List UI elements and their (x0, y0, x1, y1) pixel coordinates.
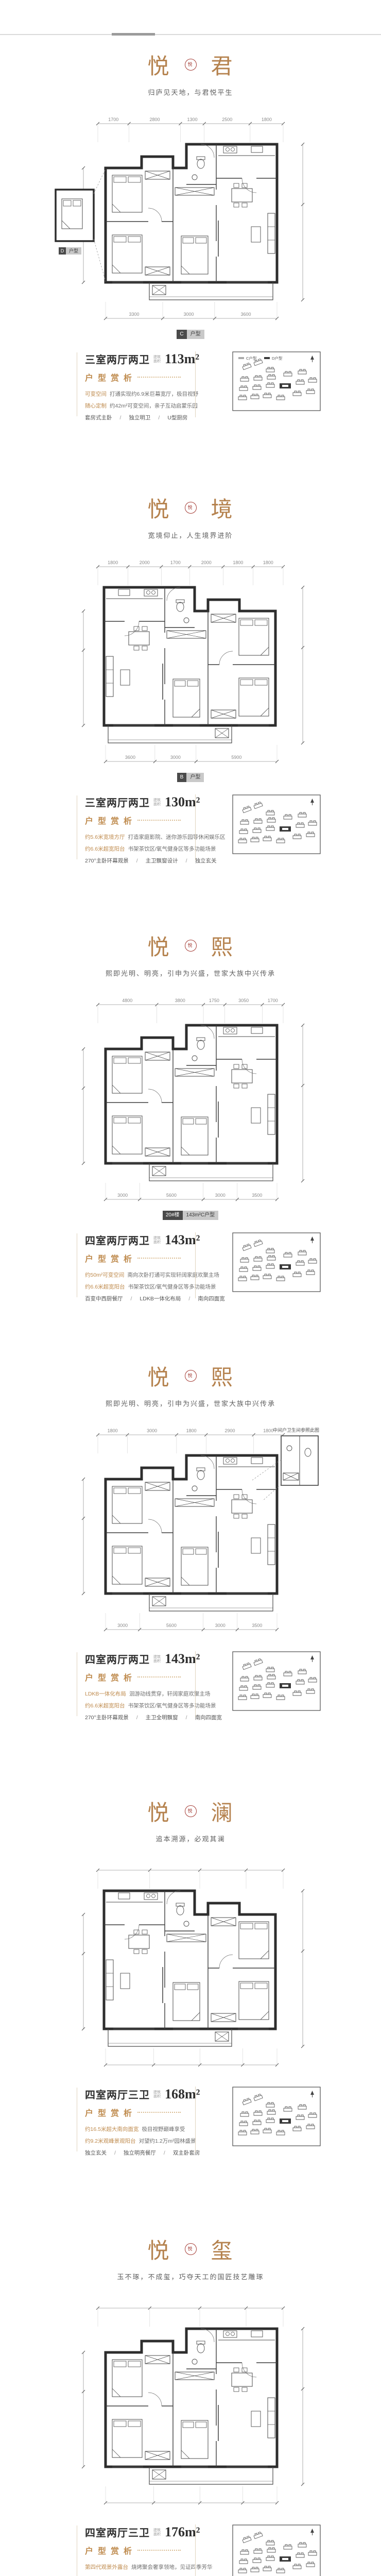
plan-badge-dark: C (177, 330, 186, 339)
plan-dimension: 3000 (117, 1623, 128, 1628)
feature-label: 约6.6米超宽阳台 (85, 846, 125, 852)
plan-badge-dark: B (177, 773, 187, 782)
seal-char: 悦 (187, 943, 193, 948)
tag-item: 270°主卧环幕观景 (85, 1712, 129, 1724)
tag-item: 独立明亮餐厅 (124, 2147, 156, 2159)
feature-text: 书架茶饮区/氧气健身区等多功能场景 (128, 1703, 216, 1709)
plan-dimension: 2000 (140, 560, 150, 565)
seal-icon: 悦 (185, 2243, 197, 2255)
feature-text: 洄游动线贯穿，轩阔家庭欢聚主场 (129, 1691, 211, 1697)
tag-row: 独立玄关/独立明亮餐厅/双主卧套房 (85, 2147, 327, 2159)
top-divider (0, 34, 381, 35)
feature-text: 打造家庭影院、迷你游乐园等休闲娱乐区 (128, 834, 226, 840)
site-map-svg: C户型 D户型 (232, 351, 321, 411)
section-title: 悦 悦 澜 (0, 1795, 381, 1827)
plan-badge-light: 户型 (187, 330, 204, 339)
legend-label: C户型 (246, 355, 257, 361)
feature-label: 可变空间 (85, 391, 107, 397)
plan-dimension: 1700 (170, 560, 181, 565)
tag-row: 270°主卧环幕观景/主卫飘窗设计/独立玄关 (85, 855, 327, 867)
seal-icon: 悦 (185, 502, 197, 514)
tag-item: 独立玄关 (195, 855, 217, 867)
section-subtitle: 追本溯源，必观其澜 (0, 1834, 381, 1843)
floor-plan (46, 1859, 335, 2074)
legend-label: D户型 (272, 355, 283, 361)
info-divider (195, 2524, 196, 2576)
plan-dimension: 3000 (117, 1193, 128, 1198)
unit-spec: 三室两厅两卫 (85, 351, 150, 366)
info-divider (195, 1651, 196, 1717)
plan-dimension: 2800 (149, 117, 160, 122)
plan-dimension: 3000 (215, 1623, 226, 1628)
plan-dimension: 1800 (263, 1428, 273, 1433)
section-header: 悦 悦 熙 熙即光明、明亮，引申为兴盛，世家大族中兴传承 (0, 1360, 381, 1408)
floor-plan-wrap: 480038001750305017003000560030003500 (46, 993, 335, 1220)
section-subtitle: 归庐见天地，与君悦平生 (0, 87, 381, 97)
feature-text: 书架茶饮区/氧气健身区等多功能场景 (128, 1284, 216, 1290)
feature-text: 书架茶饮区/氧气健身区等多功能场景 (128, 846, 216, 852)
site-map-svg (232, 2087, 321, 2146)
feature-text: 极目视野巅峰享受 (142, 2126, 185, 2132)
inset-badge-light: 户型 (69, 248, 78, 253)
floor-plan-wrap (46, 1859, 335, 2074)
tag-separator: / (136, 855, 138, 867)
plan-dimension: 1300 (187, 117, 198, 122)
floor-plan: 180030001800290018003000560030003500 (46, 1423, 335, 1639)
product-section: 悦 悦 玺 玉不琢，不成玺，巧夺天工的国匠技艺雕琢 (0, 2233, 381, 2576)
plan-dimension: 3000 (147, 1428, 157, 1433)
plan-dimension: 1700 (268, 998, 278, 1003)
area-label: 建筑面积 (153, 1655, 161, 1663)
area-label: 建筑面积 (153, 2528, 161, 2536)
area-label: 建筑面积 (153, 355, 161, 363)
unit-info: 四室两厅两卫 建筑面积 143m² 户型赏析 LDKB一体化布局洄游动线贯穿，轩… (85, 1651, 327, 1717)
site-map: C户型 D户型 (232, 351, 321, 411)
floor-plan-wrap: 180030001800290018003000560030003500 (46, 1423, 335, 1639)
section-title: 悦 悦 熙 (0, 930, 381, 961)
plan-badge: B 户型 (177, 773, 204, 782)
feature-label: 约6.6米超宽阳台 (85, 1703, 125, 1709)
section-header: 悦 悦 熙 熙即光明、明亮，引申为兴盛，世家大族中兴传承 (0, 930, 381, 978)
section-subtitle: 玉不琢，不成玺，巧夺天工的国匠技艺雕琢 (0, 2272, 381, 2281)
site-map-svg (232, 1651, 321, 1711)
tag-separator: / (114, 2147, 116, 2159)
info-divider (195, 351, 196, 417)
analysis-title: 户型赏析 (85, 2544, 136, 2556)
plan-badge: C 户型 (177, 330, 204, 339)
section-subtitle: 宽境仰止，人生境界进阶 (0, 530, 381, 540)
section-header: 悦 悦 玺 玉不琢，不成玺，巧夺天工的国匠技艺雕琢 (0, 2233, 381, 2281)
plan-dimension: 3600 (125, 755, 135, 760)
plan-dimension: 1750 (209, 998, 219, 1003)
plan-badge-light: 143m²C户型 (183, 1211, 219, 1220)
plan-dimension: 3050 (238, 998, 249, 1003)
unit-spec: 四室两厅三卫 (85, 2087, 150, 2102)
section-title: 悦 悦 境 (0, 492, 381, 523)
analysis-title: 户型赏析 (85, 371, 136, 383)
site-map (232, 1651, 321, 1711)
area-label: 建筑面积 (153, 1236, 161, 1244)
dotted-rule (137, 377, 181, 378)
analysis-title: 户型赏析 (85, 814, 136, 826)
section-header: 悦 悦 境 宽境仰止，人生境界进阶 (0, 492, 381, 540)
site-map (232, 1232, 321, 1292)
floor-plan (46, 2297, 335, 2512)
feature-text: 对望约1.2万m²园林盛景 (139, 2138, 196, 2144)
tag-item: 南向四面宽 (195, 1712, 222, 1724)
plan-dimension: 2900 (224, 1428, 235, 1433)
analysis-title: 户型赏析 (85, 1671, 136, 1683)
tag-item: 套房式主卧 (85, 412, 112, 424)
tag-item: 南向四面宽 (198, 1293, 225, 1305)
unit-inset: D 户型 (56, 169, 106, 281)
tag-separator: / (186, 1712, 187, 1724)
section-title-first: 悦 (147, 2233, 170, 2265)
seal-char: 悦 (187, 2246, 193, 2251)
feature-label: 约6.6米超宽阳台 (85, 1284, 125, 1290)
product-section: 悦 悦 熙 熙即光明、明亮，引申为兴盛，世家大族中兴传承 48003800175… (0, 930, 381, 1298)
tag-item: 主卫全明飘窗 (146, 1712, 178, 1724)
area-value: 113m² (165, 351, 199, 367)
plan-badge: 20#楼 143m²C户型 (163, 1211, 218, 1220)
section-title-first: 悦 (147, 1360, 170, 1392)
tag-item: 主卫飘窗设计 (146, 855, 178, 867)
section-title-first: 悦 (147, 492, 170, 523)
inset-badge-dark: D (61, 248, 64, 253)
seal-icon: 悦 (185, 940, 197, 952)
tag-separator: / (188, 1293, 190, 1305)
seal-char: 悦 (187, 62, 193, 67)
unit-info: 四室两厅两卫 建筑面积 143m² 户型赏析 约50m²可变空间南向次卧打通可实… (85, 1232, 327, 1298)
section-subtitle: 熙即光明、明亮，引申为兴盛，世家大族中兴传承 (0, 968, 381, 978)
tag-item: U型厨房 (167, 412, 187, 424)
unit-spec: 四室两厅两卫 (85, 1651, 150, 1666)
section-title-second: 澜 (211, 1795, 234, 1827)
unit-spec: 三室两厅两卫 (85, 794, 150, 809)
top-divider-dark-segment (112, 33, 155, 36)
floor-plan: 17002800130025001800330030003600 (46, 112, 335, 328)
tag-separator: / (120, 412, 122, 424)
unit-info: 三室两厅两卫 建筑面积 130m² 户型赏析 约5.6米宽境方厅打造家庭影院、迷… (85, 794, 327, 860)
tag-item: 270°主卧环幕观景 (85, 855, 129, 867)
feature-text: 约42m²可变空间，亲子互动启蒙乐园 (110, 403, 198, 409)
plan-dimension: 1700 (108, 117, 118, 122)
plan-dimension: 1800 (186, 1428, 197, 1433)
feature-label: 随心定制 (85, 403, 107, 409)
plan-dimension: 1800 (262, 117, 272, 122)
tag-row: 270°主卧环幕观景/主卫全明飘窗/南向四面宽 (85, 1712, 327, 1724)
feature-text: 烧烤聚会奢享领地，见证四季芳华 (131, 2564, 213, 2570)
section-subtitle: 熙即光明、明亮，引申为兴盛，世家大族中兴传承 (0, 1398, 381, 1408)
unit-info: 四室两厅三卫 建筑面积 168m² 户型赏析 约16.5米超大南向面宽极目视野巅… (85, 2087, 327, 2153)
plan-dimension: 1800 (263, 560, 273, 565)
info-divider (195, 2087, 196, 2153)
site-map-svg (232, 2524, 321, 2576)
tag-item: 双主卧套房 (173, 2147, 200, 2159)
tag-item: 独立玄关 (85, 2147, 107, 2159)
section-title-second: 熙 (211, 1360, 234, 1392)
section-title-second: 君 (211, 49, 234, 80)
tag-separator: / (164, 2147, 165, 2159)
plan-dimension: 3300 (129, 312, 139, 317)
seal-char: 悦 (187, 1808, 193, 1814)
plan-badge-light: 户型 (186, 773, 204, 782)
feature-label: LDKB一体化布局 (85, 1691, 126, 1697)
product-section: 悦 悦 熙 熙即光明、明亮，引申为兴盛，世家大族中兴传承 18003000180… (0, 1360, 381, 1717)
plan-dimension: 1800 (108, 560, 118, 565)
unit-spec: 四室两厅三卫 (85, 2524, 150, 2539)
seal-icon: 悦 (185, 1805, 197, 1817)
brochure-page: 悦 悦 君 归庐见天地，与君悦平生 1700280013002500180033… (0, 0, 381, 2576)
unit-info: 四室两厅三卫 建筑面积 176m² 户型赏析 第四代观景外露台烧烤聚会奢享领地，… (85, 2524, 327, 2576)
plan-dimension: 1800 (233, 560, 243, 565)
feature-label: 第四代观景外露台 (85, 2564, 128, 2570)
plan-dimension: 2500 (222, 117, 232, 122)
tag-separator: / (136, 1712, 138, 1724)
section-title: 悦 悦 玺 (0, 2233, 381, 2265)
product-section: 悦 悦 君 归庐见天地，与君悦平生 1700280013002500180033… (0, 49, 381, 417)
note-text: 中间户卫生间参照此图 (273, 1427, 319, 1433)
plan-dimension: 3800 (175, 998, 185, 1003)
plan-dimension: 3000 (170, 755, 181, 760)
dotted-rule (137, 1258, 181, 1259)
unit-info: 三室两厅两卫 建筑面积 113m² 户型赏析 可变空间打通实现约6.9米巨幕宽厅… (85, 351, 327, 417)
dotted-rule (137, 1676, 181, 1677)
plan-dimension: 5600 (166, 1193, 177, 1198)
plan-dimension: 3500 (252, 1623, 262, 1628)
tag-row: 套房式主卧/独立明卫/U型厨房 (85, 412, 327, 424)
feature-text: 南向次卧打通可实现轩阔家庭欢聚主场 (127, 1272, 219, 1278)
tag-separator: / (131, 1293, 132, 1305)
seal-icon: 悦 (185, 1370, 197, 1382)
plan-dimension: 3600 (240, 312, 251, 317)
dotted-rule (137, 2112, 181, 2113)
product-section: 悦 悦 境 宽境仰止，人生境界进阶 1800200017002000180018… (0, 492, 381, 860)
tag-item: 百变中西厨餐厅 (85, 1293, 123, 1305)
feature-text: 打通实现约6.9米巨幕宽厅，极目视野 (110, 391, 198, 397)
feature-label: 约16.5米超大南向面宽 (85, 2126, 138, 2132)
plan-dimension: 2000 (201, 560, 212, 565)
plan-dimension: 5900 (231, 755, 241, 760)
section-title-first: 悦 (147, 49, 170, 80)
section-title: 悦 悦 君 (0, 49, 381, 80)
section-title-first: 悦 (147, 1795, 170, 1827)
seal-char: 悦 (187, 505, 193, 510)
plan-badge-dark: 20#楼 (163, 1211, 183, 1220)
feature-label: 约5.6米宽境方厅 (85, 834, 125, 840)
tag-item: 独立明卫 (129, 412, 150, 424)
section-header: 悦 悦 君 归庐见天地，与君悦平生 (0, 49, 381, 97)
plan-dimension: 5600 (166, 1623, 177, 1628)
tag-separator: / (158, 412, 160, 424)
product-section: 悦 悦 澜 追本溯源，必观其澜 (0, 1795, 381, 2153)
dotted-rule (137, 820, 181, 821)
area-label: 建筑面积 (153, 798, 161, 806)
floor-plan-wrap: 17002800130025001800330030003600 (46, 112, 335, 339)
floor-plan: 480038001750305017003000560030003500 (46, 993, 335, 1209)
seal-char: 悦 (187, 1373, 193, 1378)
plan-dimension: 3500 (252, 1193, 262, 1198)
floor-plan-wrap (46, 2297, 335, 2512)
seal-icon: 悦 (185, 59, 197, 71)
site-map (232, 2087, 321, 2146)
floor-plan: 180020001700200018001800360030005900 (46, 555, 335, 771)
tag-item: LDKB一体化布局 (140, 1293, 181, 1305)
site-map (232, 2524, 321, 2576)
floor-plan-wrap: 180020001700200018001800360030005900 (46, 555, 335, 782)
section-title-first: 悦 (147, 930, 170, 961)
section-title-second: 玺 (211, 2233, 234, 2265)
dotted-rule (137, 2550, 181, 2551)
section-header: 悦 悦 澜 追本溯源，必观其澜 (0, 1795, 381, 1843)
site-map-svg (232, 794, 321, 854)
section-title: 悦 悦 熙 (0, 1360, 381, 1392)
tag-row: 百变中西厨餐厅/LDKB一体化布局/南向四面宽 (85, 1293, 327, 1305)
feature-label: 约50m²可变空间 (85, 1272, 124, 1278)
section-title-second: 熙 (211, 930, 234, 961)
plan-dimension: 3000 (183, 312, 194, 317)
feature-label: 约9.2米观峰景观阳台 (85, 2138, 136, 2144)
plan-dimension: 3000 (215, 1193, 226, 1198)
area-label: 建筑面积 (153, 2090, 161, 2098)
info-divider (195, 1232, 196, 1298)
site-map-svg (232, 1232, 321, 1292)
plan-dimension: 4800 (122, 998, 132, 1003)
tag-separator: / (186, 855, 187, 867)
analysis-title: 户型赏析 (85, 1252, 136, 1264)
unit-spec: 四室两厅两卫 (85, 1232, 150, 1247)
plan-dimension: 1800 (108, 1428, 118, 1433)
section-title-second: 境 (211, 492, 234, 523)
analysis-title: 户型赏析 (85, 2106, 136, 2119)
site-map (232, 794, 321, 854)
info-divider (195, 794, 196, 860)
